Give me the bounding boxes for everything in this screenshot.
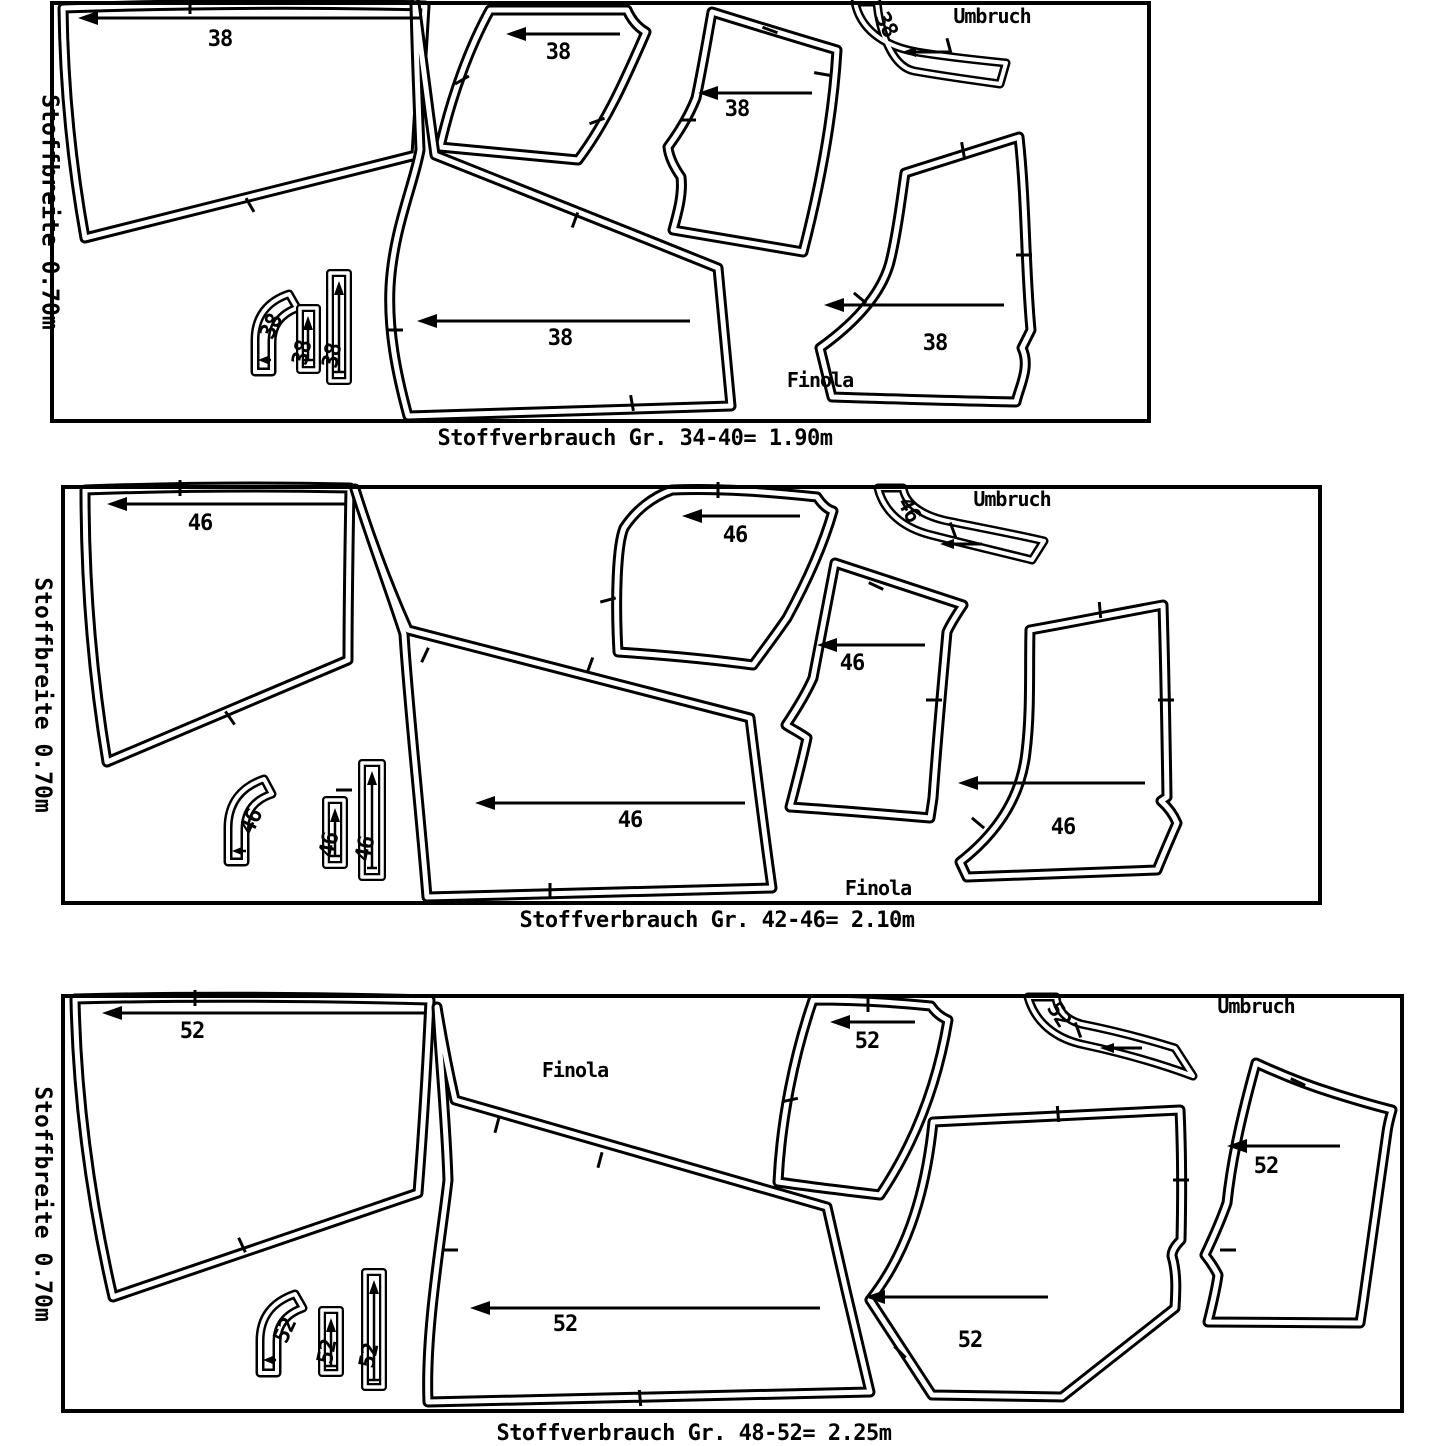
brand-label: Finola: [845, 878, 911, 898]
pattern-piece-outline: [63, 4, 425, 238]
size-label-strip2: 52: [357, 1342, 384, 1371]
grainline-arrowhead: [824, 298, 844, 312]
size-label-front: 46: [618, 810, 643, 832]
fabric-width-label: Stoffbreite 0.70m: [31, 577, 54, 812]
fold-label: Umbruch: [1217, 996, 1294, 1016]
size-label-front: 38: [548, 328, 573, 350]
notch-tick: [639, 1390, 640, 1406]
size-label-strip2: 46: [353, 835, 380, 864]
notch-tick: [854, 293, 866, 303]
fold-label: Umbruch: [953, 6, 1030, 26]
pattern-cutting-sheet: Stoffbreite 0.70m Umbruch Finola Stoffve…: [0, 0, 1445, 1445]
size-label-lower-front: 52: [958, 1330, 983, 1352]
size-label-lower-front: 46: [1051, 817, 1076, 839]
pattern-piece-outline: [820, 137, 1031, 402]
caption: Stoffverbrauch Gr. 42-46= 2.10m: [519, 910, 914, 932]
size-label-back: 46: [188, 513, 213, 535]
size-label-sleeve: 38: [546, 42, 571, 64]
fabric-width-label: Stoffbreite 0.70m: [31, 1086, 54, 1321]
notch-tick: [1057, 1106, 1058, 1122]
notch-tick: [1099, 602, 1100, 618]
size-label-front: 52: [553, 1314, 578, 1336]
grainline-arrowhead: [958, 776, 978, 790]
pattern-geometry: [0, 0, 1445, 1445]
pattern-piece-outline: [85, 487, 350, 762]
size-label-strip1: 52: [315, 1338, 342, 1367]
size-label-side-panel: 46: [840, 653, 865, 675]
size-label-lower-front: 38: [923, 333, 948, 355]
caption: Stoffverbrauch Gr. 48-52= 2.25m: [496, 1423, 891, 1445]
fabric-width-label: Stoffbreite 0.70m: [38, 94, 61, 329]
size-label-strip2: 38: [320, 342, 347, 371]
caption: Stoffverbrauch Gr. 34-40= 1.90m: [437, 428, 832, 450]
brand-label: Finola: [787, 370, 853, 390]
size-label-side-panel: 38: [725, 99, 750, 121]
size-label-back: 38: [208, 29, 233, 51]
size-label-sleeve: 52: [855, 1031, 880, 1053]
notch-tick: [972, 818, 984, 828]
fold-label: Umbruch: [973, 489, 1050, 509]
notch-tick: [587, 657, 592, 672]
pattern-piece-outline: [870, 1110, 1182, 1397]
brand-label: Finola: [542, 1060, 608, 1080]
size-label-strip1: 46: [317, 831, 344, 860]
size-label-side-panel: 52: [1254, 1156, 1279, 1178]
size-label-sleeve: 46: [723, 525, 748, 547]
size-label-back: 52: [180, 1021, 205, 1043]
size-label-strip1: 38: [290, 339, 317, 368]
